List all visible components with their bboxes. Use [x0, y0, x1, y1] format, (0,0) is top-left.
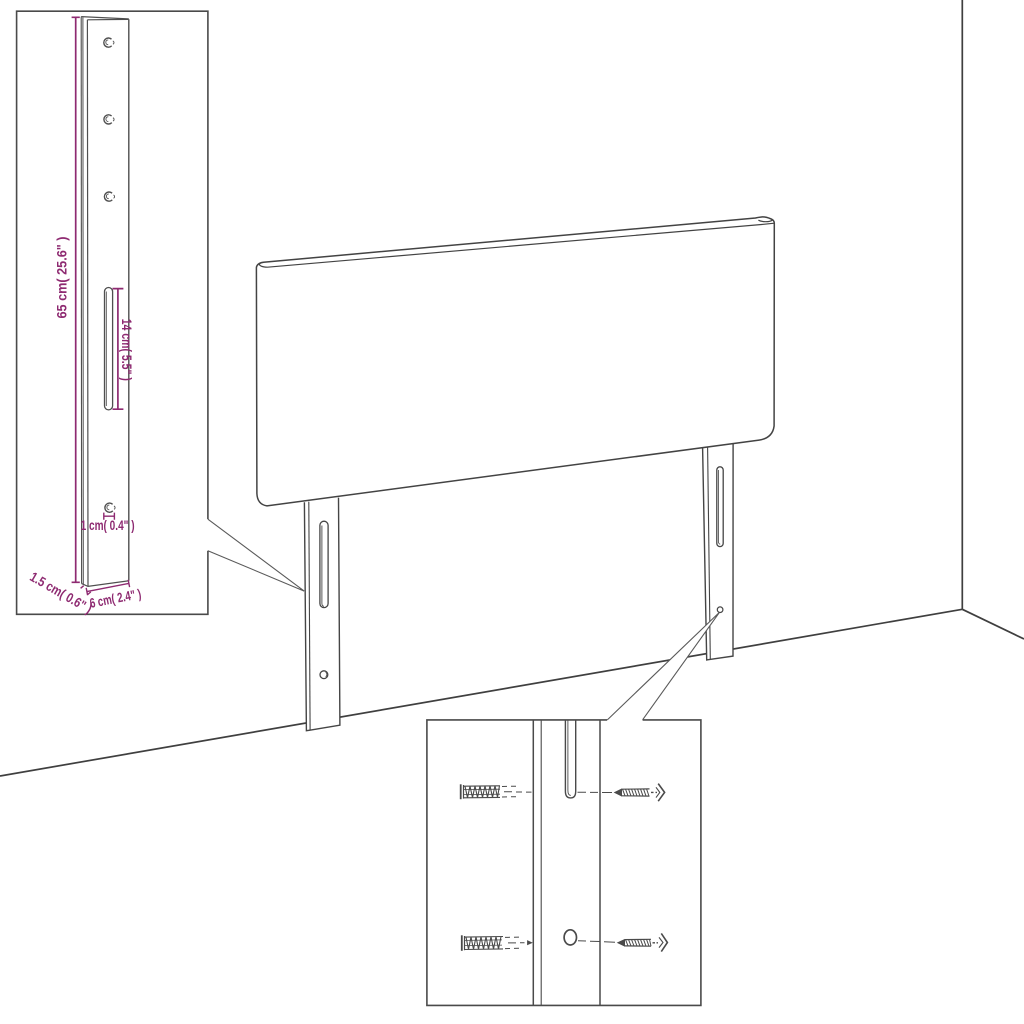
svg-text:65 cm( 25.6" ): 65 cm( 25.6" ) [55, 237, 70, 319]
svg-text:14 cm( 5.5" ): 14 cm( 5.5" ) [119, 319, 134, 381]
svg-text:1 cm( 0.4" ): 1 cm( 0.4" ) [81, 518, 135, 533]
